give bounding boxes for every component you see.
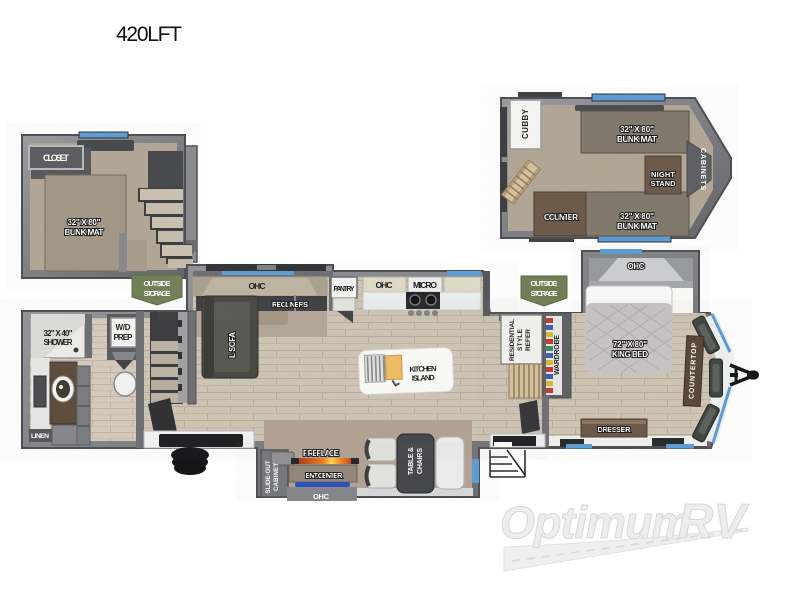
svg-text:OUTSIDE: OUTSIDE [144, 279, 171, 288]
svg-text:STORAGE: STORAGE [144, 289, 171, 298]
svg-text:RV: RV [678, 495, 750, 549]
svg-text:Optimum: Optimum [500, 497, 691, 548]
svg-text:STORAGE: STORAGE [531, 289, 558, 298]
svg-text:420LFT: 420LFT [116, 23, 182, 46]
svg-text:OUTSIDE: OUTSIDE [531, 279, 558, 288]
